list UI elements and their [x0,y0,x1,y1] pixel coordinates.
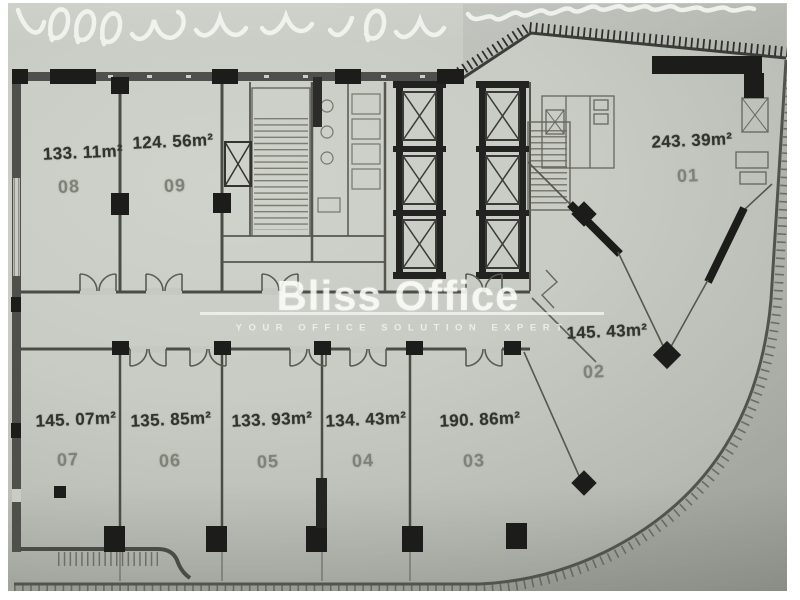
unit-01-area-label: 243. 39m² [651,129,733,153]
floor-plan-scan: 133. 11m² 08 124. 56m² 09 243. 39m² 01 1… [0,0,800,600]
photo-border-bottom [0,591,800,600]
elevator-icon [403,156,436,204]
elevator-icon [225,142,251,186]
unit-08-number: 08 [58,176,81,198]
unit-09-number: 09 [164,175,187,197]
elevator-bank-right [476,81,529,279]
brand-watermark-rule [200,312,604,315]
stairs [252,88,310,236]
unit-07-area-label: 145. 07m² [35,408,117,432]
elevator-bank-left [393,81,446,279]
unit-03-number: 03 [463,450,486,472]
unit-06-number: 06 [159,450,182,472]
unit-08-area-label: 133. 11m² [43,141,124,164]
photo-border-left [0,0,8,600]
unit-07-number: 07 [57,449,80,471]
unit-05-number: 05 [257,451,280,473]
photo-border-top [0,0,800,3]
restroom-fixtures [318,94,380,212]
photo-border-right [787,0,800,600]
unit-03-area-label: 190. 86m² [439,408,521,432]
elevator-icon [403,220,436,268]
elevator-icon [486,156,519,204]
unit-09-area-label: 124. 56m² [132,130,214,154]
unit-06-area-label: 135. 85m² [130,408,212,432]
unit-02-number: 02 [583,361,606,383]
elevator-icon [486,220,519,268]
unit-05-area-label: 133. 93m² [231,408,313,432]
unit-01-number: 01 [677,165,700,187]
elevator-icon [403,92,436,140]
elevator-icon [486,92,519,140]
unit-02-area-label: 145. 43m² [566,320,648,344]
brand-watermark-tagline: YOUR OFFICE SOLUTION EXPERT [236,323,569,334]
unit-04-number: 04 [352,450,375,472]
unit-04-area-label: 134. 43m² [325,408,407,432]
